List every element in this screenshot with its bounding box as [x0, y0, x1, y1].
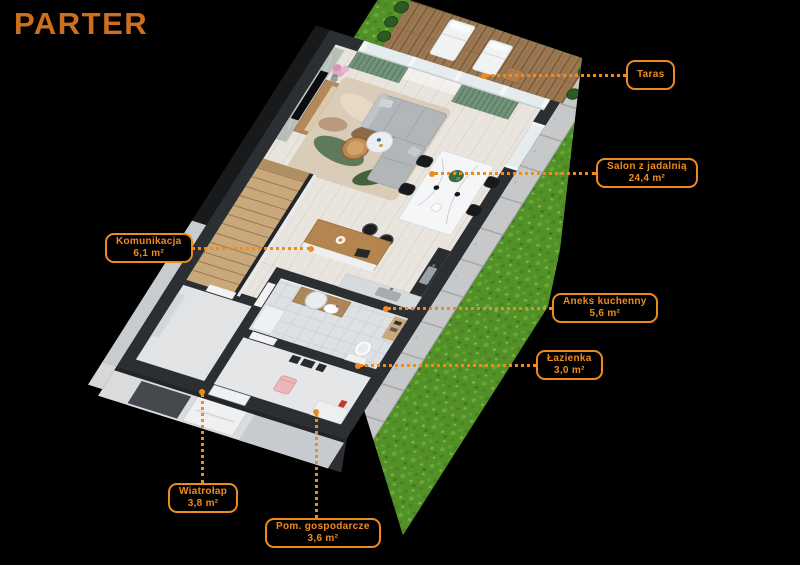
leader-dot-salon — [429, 171, 435, 177]
room-area: 24,4 m² — [629, 173, 666, 185]
room-name: Salon z jadalnią — [607, 161, 687, 173]
leader-line-taras — [486, 74, 626, 77]
leader-dot-komunikacja — [308, 246, 314, 252]
leader-line-pom-gospodarcze — [315, 414, 318, 518]
room-name: Wiatrołap — [179, 486, 227, 498]
room-label-lazienka: Łazienka 3,0 m² — [536, 350, 603, 380]
leader-dot-lazienka — [355, 363, 361, 369]
room-name: Komunikacja — [116, 236, 182, 248]
room-name: Pom. gospodarcze — [276, 521, 370, 533]
room-area: 6,1 m² — [133, 248, 164, 260]
room-label-pom-gospodarcze: Pom. gospodarcze 3,6 m² — [265, 518, 381, 548]
room-area: 5,6 m² — [589, 308, 620, 320]
leader-line-wiatrolap — [201, 394, 204, 483]
room-label-taras: Taras — [626, 60, 675, 90]
leader-line-lazienka — [360, 364, 536, 367]
room-label-aneks-kuchenny: Aneks kuchenny 5,6 m² — [552, 293, 658, 323]
room-label-salon: Salon z jadalnią 24,4 m² — [596, 158, 698, 188]
leader-dot-pom-gospodarcze — [313, 409, 319, 415]
room-name: Aneks kuchenny — [563, 296, 647, 308]
room-area: 3,6 m² — [308, 533, 339, 545]
room-label-wiatrolap: Wiatrołap 3,8 m² — [168, 483, 238, 513]
leader-line-komunikacja — [179, 247, 310, 250]
room-area: 3,8 m² — [188, 498, 219, 510]
leader-dot-wiatrolap — [199, 389, 205, 395]
leader-line-aneks-kuchenny — [388, 307, 552, 310]
leader-dot-taras — [481, 73, 487, 79]
room-area: 3,0 m² — [554, 365, 585, 377]
room-name: Łazienka — [547, 353, 592, 365]
floor-plan-view: PARTER — [0, 0, 800, 565]
room-label-komunikacja: Komunikacja 6,1 m² — [105, 233, 193, 263]
annotations-layer: Taras Salon z jadalnią 24,4 m² Komunikac… — [0, 0, 800, 565]
room-name: Taras — [637, 69, 664, 81]
leader-dot-aneks-kuchenny — [383, 306, 389, 312]
leader-line-salon — [434, 172, 596, 175]
